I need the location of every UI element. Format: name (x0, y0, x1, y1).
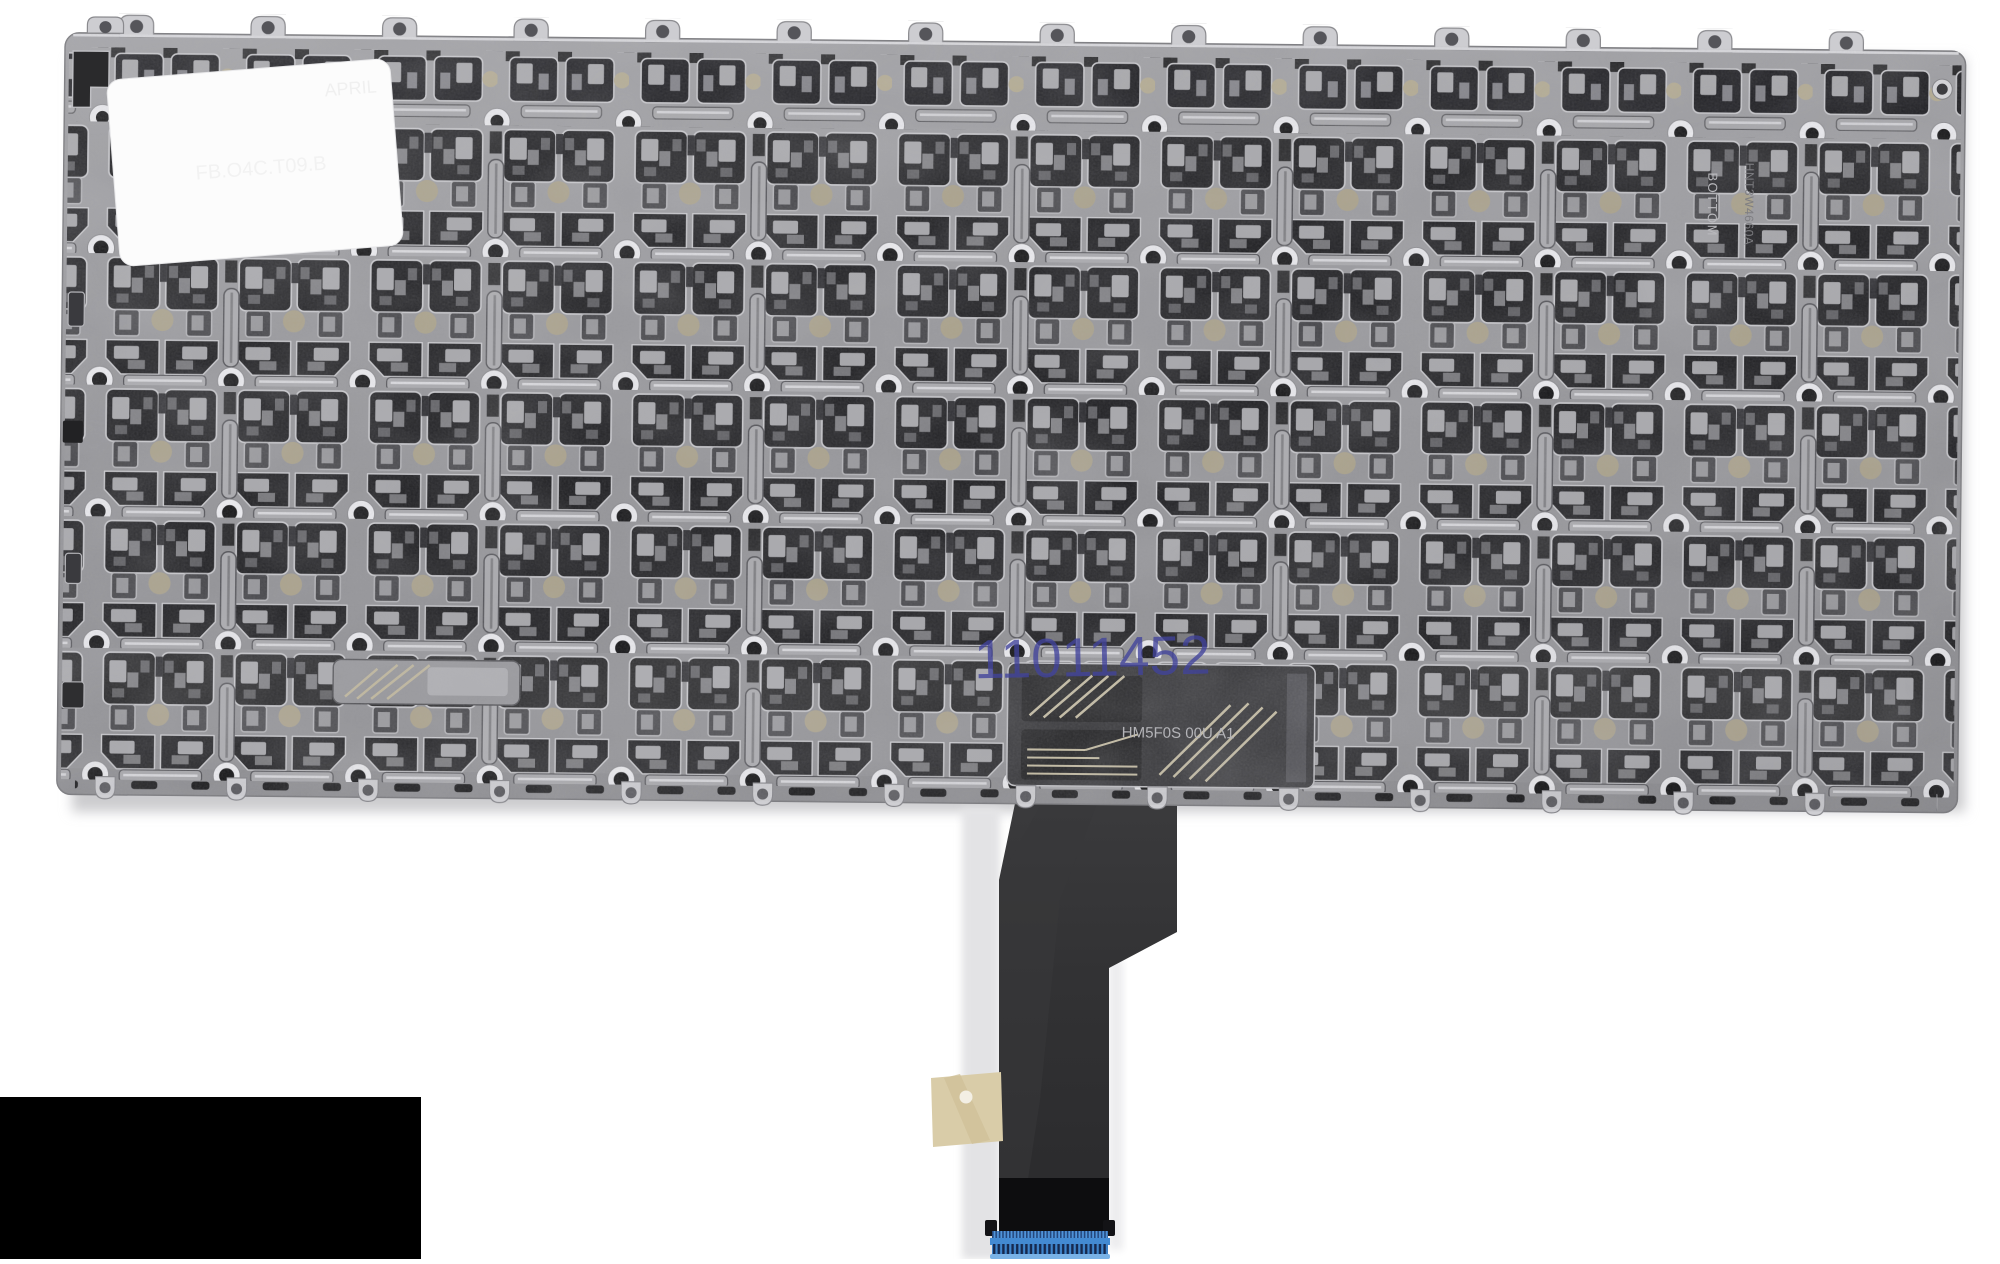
svg-text:BOTTOM: BOTTOM (1705, 172, 1721, 237)
svg-text:HM5F0S 00U A1: HM5F0S 00U A1 (1122, 724, 1235, 742)
svg-text:APRIL: APRIL (324, 76, 377, 100)
svg-text:HNT3W4660A: HNT3W4660A (1742, 163, 1757, 246)
svg-text:11011452: 11011452 (973, 623, 1211, 690)
